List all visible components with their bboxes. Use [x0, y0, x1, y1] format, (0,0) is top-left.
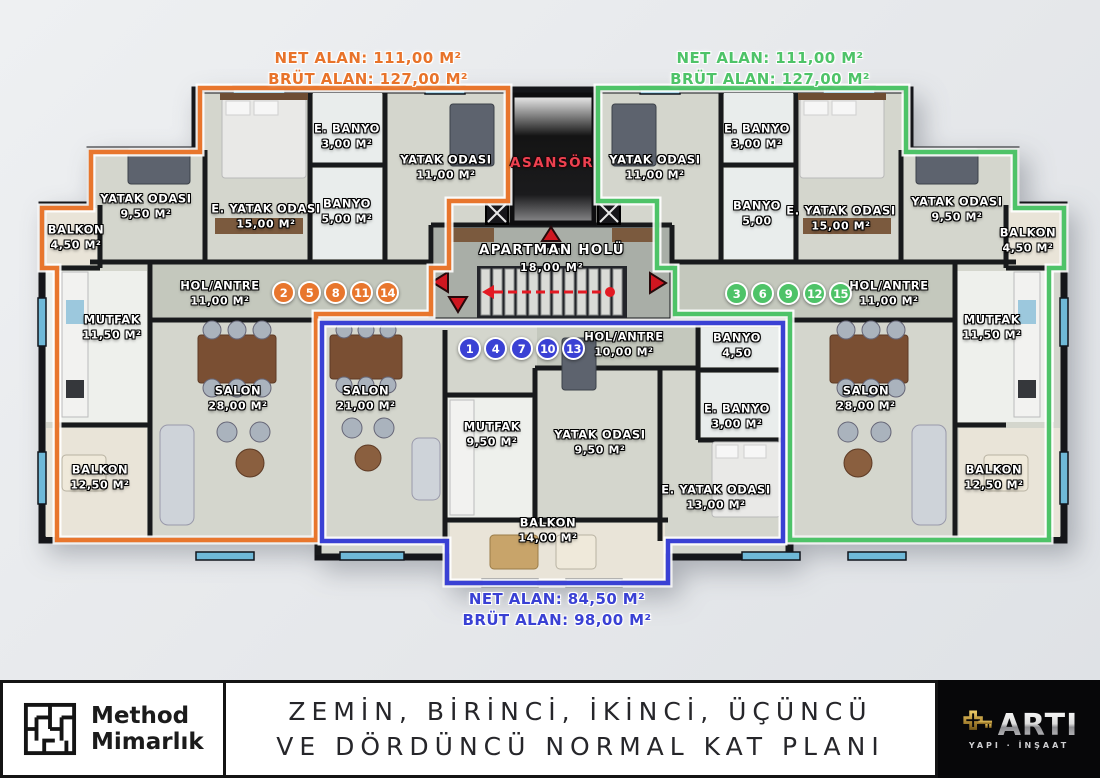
room-label-yatak-odasi: YATAK ODASI11,00 M²	[609, 151, 700, 182]
room-label-salon: SALON28,00 M²	[836, 382, 895, 413]
room-name: APARTMAN HOLÜ	[479, 241, 625, 260]
unit-badge: 1	[458, 337, 481, 360]
unit-badges-right: 3 6 9 12 15	[725, 282, 852, 305]
method-logo-icon	[23, 702, 77, 756]
room-label-yatak-odasi: YATAK ODASI9,50 M²	[100, 190, 191, 221]
room-label-balkon: BALKON12,50 M²	[964, 461, 1023, 492]
unit-badge: 2	[272, 281, 295, 304]
builder-brand-subtitle: YAPI · İNŞAAT	[969, 741, 1069, 750]
unit-badge: 13	[562, 337, 585, 360]
unit-badge: 8	[324, 281, 347, 304]
room-label-e-yatak-odasi: E. YATAK ODASI15,00 M²	[211, 200, 320, 231]
stats-right-apartment: NET ALAN: 111,00 M² BRÜT ALAN: 127,00 M²	[670, 48, 870, 90]
room-label-hol-antre: HOL/ANTRE11,00 M²	[180, 277, 259, 308]
room-label-hol-antre: HOL/ANTRE10,00 M²	[584, 328, 663, 359]
unit-badges-center: 1 4 7 10 13	[458, 337, 585, 360]
unit-badge: 3	[725, 282, 748, 305]
room-label-yatak-odasi: YATAK ODASI11,00 M²	[400, 151, 491, 182]
net-area-label: NET ALAN: 111,00 M²	[670, 48, 870, 69]
room-label-banyo: BANYO5,00	[733, 197, 781, 228]
room-label-salon: SALON28,00 M²	[208, 382, 267, 413]
room-label-salon: SALON21,00 M²	[336, 382, 395, 413]
studio-name-line2: Mimarlık	[91, 729, 204, 755]
room-label-mutfak: MUTFAK9,50 M²	[464, 418, 521, 449]
room-label-e-banyo: E. BANYO3,00 M²	[704, 400, 770, 431]
architect-name: Method Mimarlık	[91, 703, 204, 756]
unit-badge: 14	[376, 281, 399, 304]
unit-badge: 15	[829, 282, 852, 305]
builder-brand-name: ARTI	[998, 708, 1079, 743]
room-label-yatak-odasi: YATAK ODASI9,50 M²	[911, 193, 1002, 224]
unit-badge: 12	[803, 282, 826, 305]
net-area-label: NET ALAN: 84,50 M²	[463, 589, 652, 610]
plan-title-panel: ZEMİN, BİRİNCİ, İKİNCİ, ÜÇÜNCÜ VE DÖRDÜN…	[226, 680, 938, 778]
stats-left-apartment: NET ALAN: 111,00 M² BRÜT ALAN: 127,00 M²	[268, 48, 468, 90]
apartment-hall-label: APARTMAN HOLÜ 18,00 M²	[479, 241, 625, 275]
floor-plan-area: NET ALAN: 111,00 M² BRÜT ALAN: 127,00 M²…	[0, 0, 1100, 680]
unit-badge: 4	[484, 337, 507, 360]
room-label-balkon: BALKON4,50 M²	[1000, 224, 1056, 255]
room-area: 18,00 M²	[479, 260, 625, 275]
footer-bar: Method Mimarlık ZEMİN, BİRİNCİ, İKİNCİ, …	[0, 680, 1100, 778]
stats-center-apartment: NET ALAN: 84,50 M² BRÜT ALAN: 98,00 M²	[463, 589, 652, 631]
unit-badge: 5	[298, 281, 321, 304]
unit-badge: 10	[536, 337, 559, 360]
room-label-mutfak: MUTFAK11,50 M²	[962, 311, 1021, 342]
unit-badge: 6	[751, 282, 774, 305]
plan-title-line2: VE DÖRDÜNCÜ NORMAL KAT PLANI	[276, 732, 884, 761]
room-label-balkon: BALKON14,00 M²	[518, 514, 577, 545]
room-label-balkon: BALKON12,50 M²	[70, 461, 129, 492]
room-label-balkon: BALKON4,50 M²	[48, 221, 104, 252]
net-area-label: NET ALAN: 111,00 M²	[268, 48, 468, 69]
room-label-hol-antre: HOL/ANTRE11,00 M²	[849, 277, 928, 308]
gross-area-label: BRÜT ALAN: 127,00 M²	[268, 69, 468, 90]
studio-name-line1: Method	[91, 703, 204, 729]
room-label-e-yatak-odasi: E. YATAK ODASI13,00 M²	[661, 481, 770, 512]
floor-plan-page: NET ALAN: 111,00 M² BRÜT ALAN: 127,00 M²…	[0, 0, 1100, 778]
room-label-banyo: BANYO5,00 M²	[322, 195, 373, 226]
architect-panel: Method Mimarlık	[0, 680, 226, 778]
unit-badge: 11	[350, 281, 373, 304]
elevator-label: ASANSÖR	[510, 155, 594, 171]
builder-panel: ARTI YAPI · İNŞAAT	[938, 680, 1100, 778]
unit-badge: 7	[510, 337, 533, 360]
room-label-banyo: BANYO4,50	[713, 329, 761, 360]
room-label-yatak-odasi: YATAK ODASI9,50 M²	[554, 426, 645, 457]
unit-badges-left: 2 5 8 11 14	[272, 281, 399, 304]
plan-title-line1: ZEMİN, BİRİNCİ, İKİNCİ, ÜÇÜNCÜ	[288, 697, 872, 726]
room-label-e-banyo: E. BANYO3,00 M²	[314, 120, 380, 151]
gross-area-label: BRÜT ALAN: 98,00 M²	[463, 610, 652, 631]
gross-area-label: BRÜT ALAN: 127,00 M²	[670, 69, 870, 90]
unit-badge: 9	[777, 282, 800, 305]
room-label-mutfak: MUTFAK11,50 M²	[82, 311, 141, 342]
room-label-e-banyo: E. BANYO3,00 M²	[724, 120, 790, 151]
room-label-e-yatak-odasi: E. YATAK ODASI15,00 M²	[786, 202, 895, 233]
key-icon	[960, 709, 994, 743]
